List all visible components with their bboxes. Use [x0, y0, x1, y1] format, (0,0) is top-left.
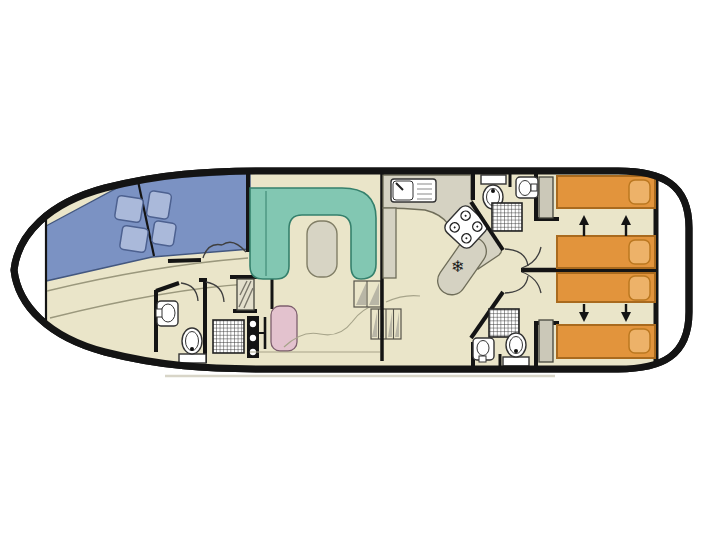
sink-icon — [156, 301, 178, 326]
dashboard-knob — [250, 335, 256, 341]
deck-entry-wall — [168, 260, 201, 261]
sink-icon — [516, 177, 538, 198]
pillow — [629, 276, 650, 300]
shower-icon — [213, 320, 244, 353]
wardrobe-icon — [237, 279, 254, 310]
boat-floor-plan: ❄ — [0, 0, 720, 540]
sun-cushion — [151, 220, 176, 246]
fridge-snowflake-icon: ❄ — [451, 257, 464, 276]
wardrobe-icon — [539, 177, 553, 218]
helm-seat — [271, 306, 297, 351]
galley-counter-strip — [383, 208, 396, 278]
sun-cushion — [114, 195, 143, 223]
interior: ❄ — [46, 166, 658, 374]
sliding-double-bed — [557, 236, 655, 268]
floor-plan-canvas: ❄ — [0, 0, 720, 540]
galley-sink-icon — [391, 179, 436, 202]
pillow — [629, 329, 650, 353]
pillow — [629, 240, 650, 264]
sliding-double-bed — [557, 273, 655, 302]
sun-cushion — [146, 190, 172, 219]
pillow — [629, 180, 650, 204]
single-bed — [557, 176, 655, 208]
dashboard-knob — [250, 321, 256, 327]
sun-cushion — [119, 225, 148, 253]
sink-icon — [473, 338, 494, 362]
saloon-table — [307, 221, 337, 277]
single-bed — [557, 325, 655, 358]
wardrobe-icon — [539, 320, 553, 362]
shower-icon — [492, 203, 522, 231]
